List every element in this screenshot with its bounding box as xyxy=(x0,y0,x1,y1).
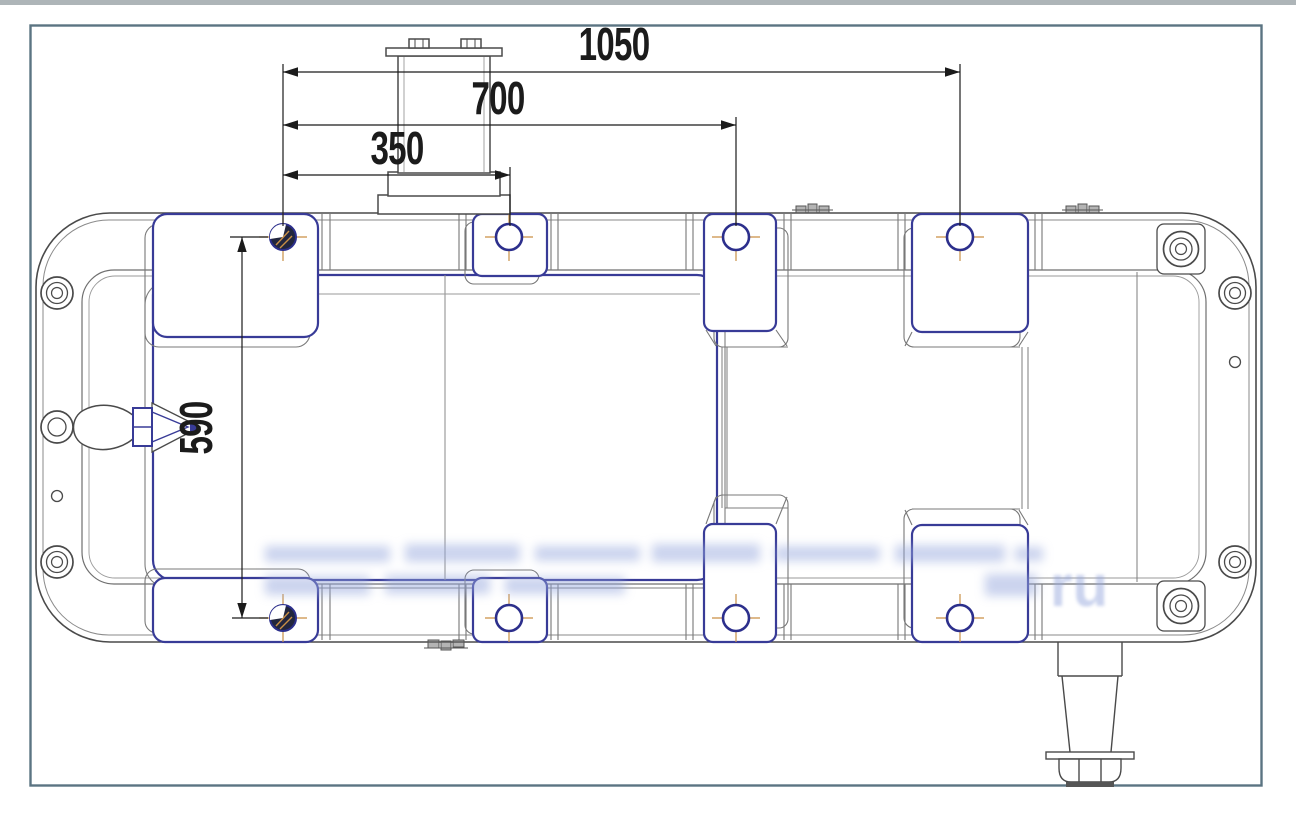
dim-label-350: 350 xyxy=(370,124,423,174)
clamp-glyph xyxy=(424,640,468,650)
flange-bolt xyxy=(409,39,429,48)
bolt-boss xyxy=(1219,277,1251,309)
pad-hole xyxy=(947,605,973,631)
technical-drawing-canvas: ru 1050 xyxy=(0,0,1296,818)
dim-label-1050: 1050 xyxy=(579,20,650,70)
corner-bracket-boss xyxy=(1157,581,1205,631)
pad-hole xyxy=(723,605,749,631)
dim-label-700: 700 xyxy=(471,74,524,124)
small-hole xyxy=(1230,357,1241,368)
drain-cap xyxy=(1066,782,1114,787)
filler-flange xyxy=(386,48,502,56)
bolt-boss xyxy=(41,546,73,578)
drain-hex-nut xyxy=(1059,759,1121,782)
watermark-fragment: ru xyxy=(1050,554,1108,619)
pad-hole xyxy=(496,605,522,631)
datum-hole-bottom xyxy=(270,605,296,631)
filler-neck-base xyxy=(378,195,510,214)
pad-hole xyxy=(723,224,749,250)
small-hole xyxy=(52,491,63,502)
bolt-boss xyxy=(41,277,73,309)
dim-label-590: 590 xyxy=(172,401,222,454)
pad-hole xyxy=(496,224,522,250)
pad-hole xyxy=(947,224,973,250)
drain-washer xyxy=(1046,752,1134,759)
corner-bracket-boss xyxy=(1157,224,1205,274)
filler-neck-step xyxy=(388,172,500,196)
drawing-page: ru 1050 xyxy=(0,0,1296,818)
bolt-boss xyxy=(1219,546,1251,578)
datum-hole-top xyxy=(270,224,296,250)
flange-bolt xyxy=(461,39,481,48)
page-top-strip xyxy=(0,0,1296,5)
